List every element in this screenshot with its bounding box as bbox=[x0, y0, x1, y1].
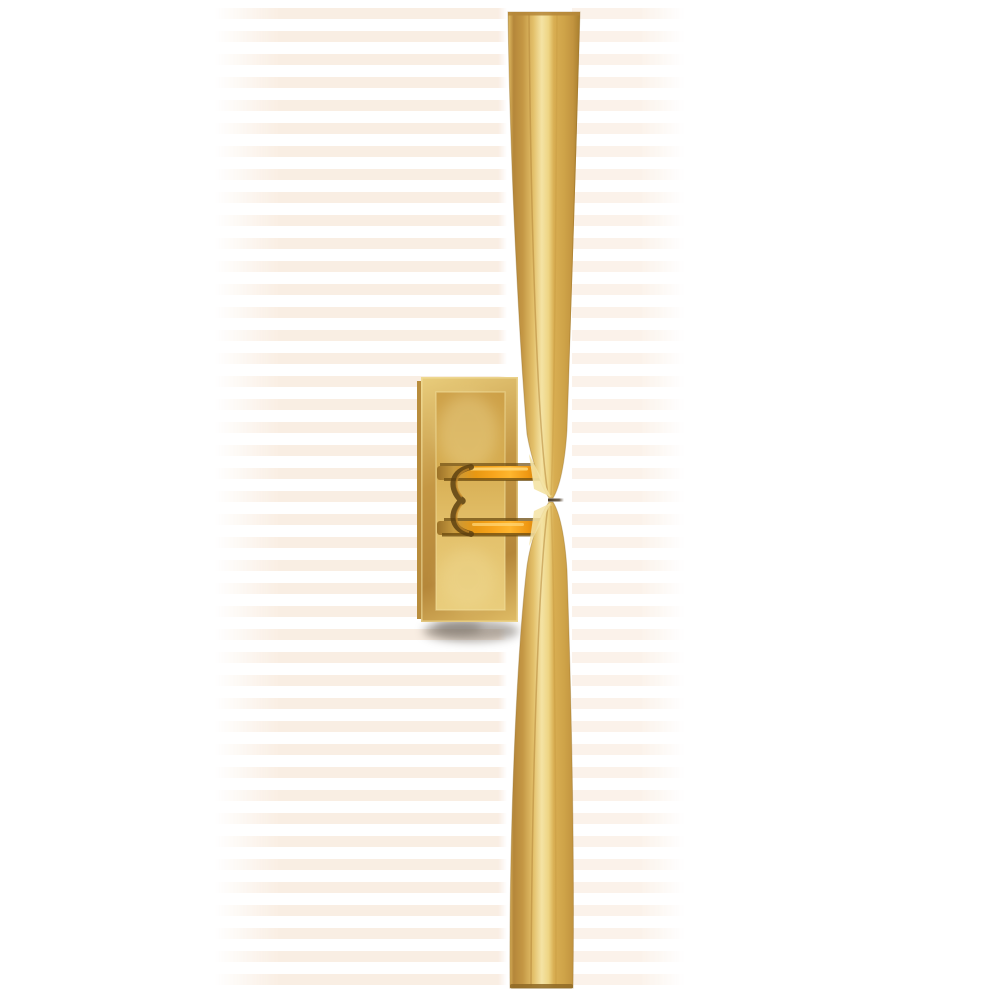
spike-top-cap bbox=[508, 12, 580, 16]
spike-bottom-cap bbox=[510, 984, 573, 989]
arm-bottom-specular bbox=[472, 523, 524, 526]
product-photo bbox=[0, 0, 1000, 1000]
sconce-image bbox=[0, 0, 1000, 1000]
arm-top-specular bbox=[470, 468, 528, 471]
arm-bottom-underside bbox=[442, 533, 546, 537]
backplate-sheen-lower bbox=[440, 548, 496, 608]
arm-top-underside bbox=[444, 478, 546, 481]
spindle bbox=[508, 12, 580, 989]
backplate-sheen-upper bbox=[438, 394, 498, 470]
spike-upper bbox=[508, 12, 580, 498]
waist-seam bbox=[548, 499, 564, 502]
backplate bbox=[417, 377, 518, 622]
wall-shadow-core bbox=[434, 621, 482, 635]
